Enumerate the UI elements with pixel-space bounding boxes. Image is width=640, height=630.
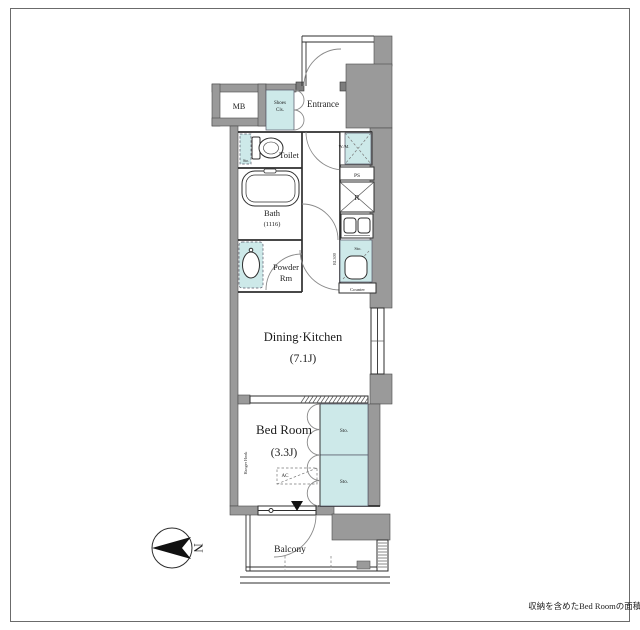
dining-kitchen-size-label: (7.1J) (290, 353, 317, 365)
shoes-closet-label-2: Cls. (276, 108, 284, 113)
drain (357, 561, 370, 569)
bath-label: Bath (264, 208, 281, 218)
bedroom-label: Bed Room (256, 422, 312, 437)
bathtub-icon (242, 169, 299, 206)
folding-door-arc (294, 110, 304, 130)
folding-door-arc (294, 90, 304, 110)
stove-icon (341, 214, 373, 238)
divider-panel (377, 540, 388, 571)
door-arc (266, 254, 302, 290)
washing-machine-label: W./M. (339, 144, 350, 149)
balcony-window (258, 501, 316, 515)
dk-window (371, 308, 384, 374)
window-lock-icon (269, 509, 273, 513)
bedroom-size-label: (3.3J) (271, 447, 298, 459)
storage-upper-label: Sto. (340, 428, 348, 434)
door-arc (306, 132, 344, 170)
footnote: 収納を含めたBed Roomの面積は4.4Jとなります (528, 601, 640, 611)
hanger-hook-label: Hanger Hook (243, 451, 248, 475)
sink-basin-icon (243, 252, 260, 278)
kitchen-storage-label: Sto. (354, 246, 361, 251)
pipe-space-label: PS (354, 173, 360, 179)
sliding-partition (250, 396, 368, 403)
bedroom-storage (307, 404, 368, 506)
ac-unit-label: AC (282, 474, 290, 479)
compass-icon: N (152, 528, 206, 568)
floor-plan-drawing: N MB Shoes Cls. Entrance Toilet Sto. W./… (0, 0, 640, 630)
mb-label: MB (233, 102, 245, 111)
counter-label: Counter (350, 287, 365, 292)
beam-label: RL300 (332, 253, 337, 265)
powder-room-label-1: Powder (273, 262, 299, 272)
faucet-icon (249, 248, 253, 252)
door-arc (302, 204, 338, 240)
shoes-closet-label-1: Shoes (274, 101, 286, 106)
refrigerator-label: R (354, 193, 359, 202)
balcony-label: Balcony (274, 545, 306, 555)
toilet-label: Toilet (279, 150, 299, 160)
entrance-label: Entrance (307, 99, 339, 109)
storage-lower-label: Sto. (340, 479, 348, 485)
toilet-storage-label: Sto. (243, 159, 249, 163)
kitchen-column (339, 132, 376, 293)
bath-room (242, 169, 338, 240)
powder-room-label-2: Rm (280, 273, 293, 283)
kitchen-sink-icon (345, 256, 367, 279)
entrance-door-arc (304, 49, 341, 86)
dining-kitchen-label: Dining·Kitchen (264, 330, 343, 344)
floor-plan-page: N MB Shoes Cls. Entrance Toilet Sto. W./… (0, 0, 640, 630)
bath-size-label: (1116) (264, 221, 281, 228)
north-label: N (191, 543, 206, 553)
door-jamb (296, 82, 304, 91)
